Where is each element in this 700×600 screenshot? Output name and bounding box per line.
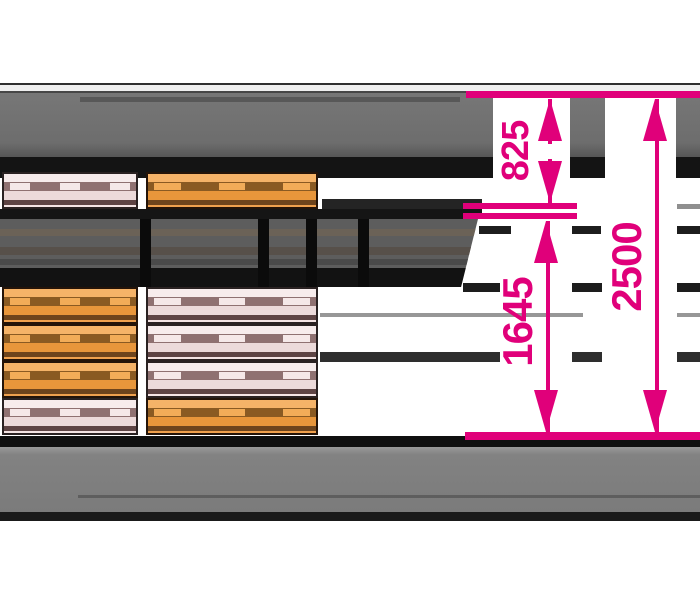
hidden-line-dash [572, 352, 602, 362]
panel-stripe [0, 247, 478, 255]
hidden-line-dash [677, 226, 700, 234]
pallet-pink [2, 398, 138, 435]
intermediate-shelf-deck [0, 209, 482, 219]
pallet-orange [2, 287, 138, 324]
pallet-blocks-row [4, 297, 136, 306]
pallet-blocks-row [4, 182, 136, 191]
pallet-bottom-board [148, 200, 316, 205]
pallet-blocks-row [4, 371, 136, 380]
pallet-blocks-row [148, 297, 316, 306]
roof-band-segment-right [676, 93, 700, 157]
pallet-deck-board [4, 306, 136, 315]
pallet-blocks-row [148, 371, 316, 380]
dimension-1645-arrow-up [534, 221, 558, 263]
pallet-top-board [4, 289, 136, 297]
pallet-orange [2, 361, 138, 398]
pallet-top-board [4, 174, 136, 182]
floor-underside-band [0, 512, 700, 521]
dimension-reference-line-shelf-upper [463, 203, 577, 209]
pallet-top-board [148, 326, 316, 334]
hidden-line-dash [677, 204, 700, 209]
wall-rail-line [320, 313, 583, 317]
pallet-deck-board [4, 343, 136, 352]
panel-divider-post [306, 219, 317, 287]
panel-stripe [0, 229, 478, 236]
pallet-top-board [4, 326, 136, 334]
pallet-pink [146, 287, 318, 324]
pallet-deck-board [148, 306, 316, 315]
pallet-orange [2, 324, 138, 361]
dimension-825-arrow-down [538, 161, 562, 203]
roof-band-shadow-streak [80, 97, 460, 102]
pallet-deck-board [148, 380, 316, 389]
hidden-line-dash [572, 226, 601, 234]
upper-deck-pallet-slot-right [146, 172, 318, 209]
lower-deck-pallet-stack-right [146, 287, 318, 435]
pallet-pink [146, 361, 318, 398]
dimension-1645-arrow-down [534, 390, 558, 432]
lower-deck-pallet-stack-left [2, 287, 138, 435]
pallet-orange [146, 398, 318, 435]
pallet-deck-board [148, 417, 316, 426]
hidden-line-dash [677, 313, 700, 317]
dimension-reference-line-floor [465, 432, 700, 440]
pallet-pink [146, 324, 318, 361]
ceiling-black-band-middle [570, 157, 605, 178]
pallet-bottom-board [4, 200, 136, 205]
roof-band-segment-middle [570, 93, 605, 157]
panel-stripe [0, 259, 478, 265]
dimension-2500-label: 2500 [605, 207, 649, 327]
pallet-bottom-board [148, 389, 316, 394]
pallet-top-board [148, 363, 316, 371]
panel-divider-post [140, 219, 151, 287]
pallet-blocks-row [4, 334, 136, 343]
pallet-blocks-row [148, 408, 316, 417]
pallet-deck-board [148, 191, 316, 200]
pallet-top-board [4, 363, 136, 371]
dimension-2500-shaft [655, 99, 659, 432]
pallet-top-board [148, 289, 316, 297]
pallet-deck-board [148, 343, 316, 352]
pallet-top-board [4, 400, 136, 408]
dimension-reference-line-ceiling [466, 91, 700, 98]
pallet-blocks-row [148, 182, 316, 191]
pallet-bottom-board [4, 426, 136, 431]
pallet-bottom-board [4, 389, 136, 394]
panel-divider-post [358, 219, 369, 287]
under-shelf-dark-cargo-panel [0, 219, 478, 287]
dimension-reference-line-shelf-lower [463, 213, 577, 219]
hidden-line-dash [677, 283, 700, 292]
panel-divider-post [258, 219, 269, 287]
pallet-orange [146, 172, 318, 209]
upper-deck-pallet-slot-left [2, 172, 138, 209]
pallet-top-board [148, 400, 316, 408]
dimension-1645-label: 1645 [496, 262, 540, 382]
dimension-2500-arrow-up [643, 99, 667, 141]
hidden-line-dash [572, 283, 602, 292]
hidden-line-dash [479, 226, 511, 234]
roof-band-segment-left [0, 93, 493, 157]
pallet-blocks-row [4, 408, 136, 417]
pallet-pink [2, 172, 138, 209]
pallet-deck-board [4, 417, 136, 426]
pallet-bottom-board [4, 315, 136, 320]
pallet-bottom-board [148, 352, 316, 357]
dimension-825-arrow-up [538, 99, 562, 141]
dimension-825-label: 825 [496, 101, 536, 201]
pallet-bottom-board [148, 315, 316, 320]
upper-deck-shadow-band [322, 199, 482, 209]
floor-structure-band [0, 447, 700, 512]
dimension-2500-arrow-down [643, 390, 667, 432]
wall-rail-line [320, 352, 500, 362]
pallet-deck-board [4, 380, 136, 389]
panel-bottom-band [0, 268, 478, 287]
floor-seam-line [78, 495, 700, 498]
pallet-blocks-row [148, 334, 316, 343]
pallet-top-board [148, 174, 316, 182]
ceiling-black-band-right [676, 157, 700, 178]
pallet-deck-board [4, 191, 136, 200]
dimension-825-arrow-gap [541, 144, 559, 159]
pallet-bottom-board [4, 352, 136, 357]
truck-loading-cross-section-diagram: 825 1645 2500 [0, 0, 700, 600]
pallet-bottom-board [148, 426, 316, 431]
hidden-line-dash [677, 352, 700, 362]
